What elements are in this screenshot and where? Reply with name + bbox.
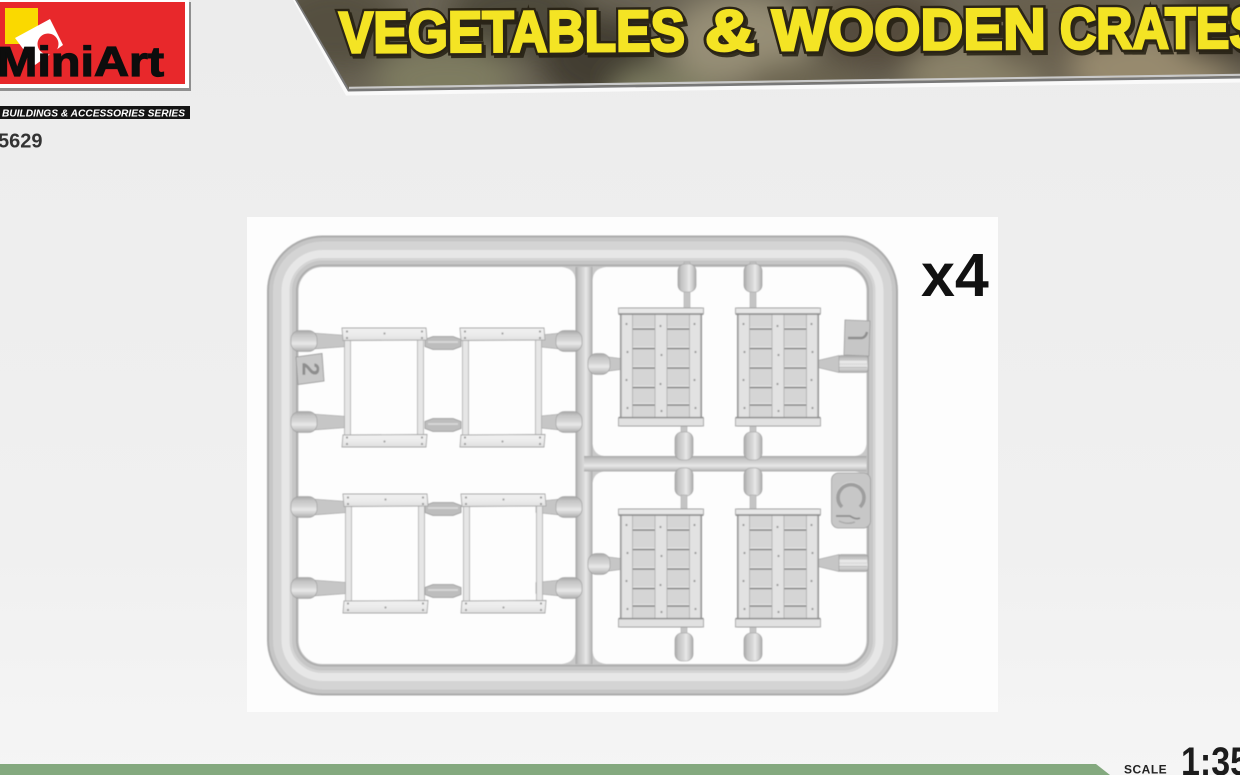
- svg-text:MiniArt: MiniArt: [0, 38, 164, 85]
- svg-text:BUILDINGS & ACCESSORIES SERIES: BUILDINGS & ACCESSORIES SERIES: [2, 108, 185, 120]
- svg-text:WOODEN: WOODEN: [772, 0, 1046, 63]
- svg-text:&: &: [705, 0, 755, 64]
- svg-text:1:35: 1:35: [1181, 740, 1240, 775]
- svg-text:CRATES: CRATES: [1060, 0, 1240, 62]
- svg-text:2: 2: [297, 362, 324, 375]
- svg-text:x4: x4: [921, 241, 989, 309]
- svg-text:VEGETABLES: VEGETABLES: [339, 0, 685, 65]
- svg-text:SCALE: SCALE: [1124, 763, 1167, 776]
- svg-text:5629: 5629: [0, 131, 43, 153]
